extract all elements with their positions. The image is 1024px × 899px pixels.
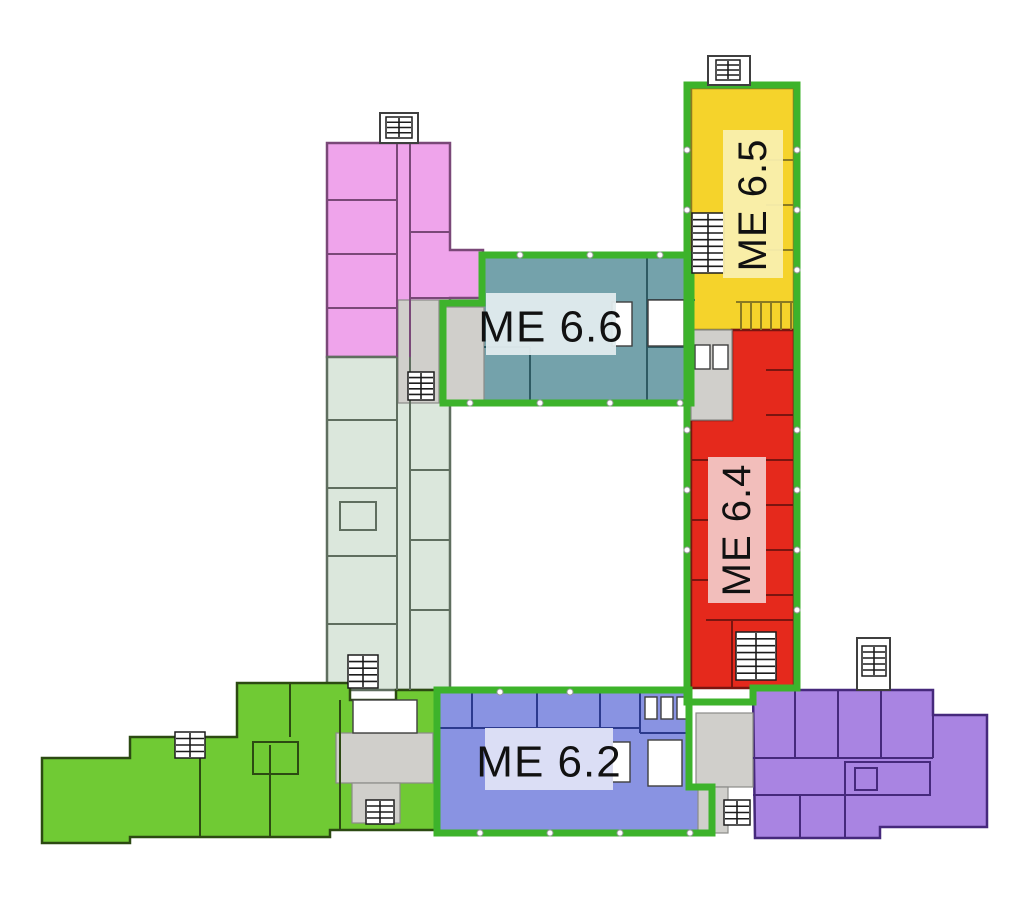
- floor-plan-page: ME 6.6ME 6.5ME 6.4ME 6.2: [0, 0, 1024, 899]
- column-dot: [794, 487, 800, 493]
- column-dot: [497, 689, 503, 695]
- lift-fixture: [353, 700, 417, 733]
- lobby-area: [696, 713, 753, 787]
- zone-label-me66: ME 6.6: [478, 303, 623, 352]
- column-dot: [684, 147, 690, 153]
- column-dot: [467, 400, 473, 406]
- lobby-area: [336, 733, 433, 783]
- zone-label-me64: ME 6.4: [715, 464, 759, 597]
- column-dot: [517, 252, 523, 258]
- column-dot: [684, 427, 690, 433]
- lift-fixture: [661, 697, 673, 719]
- column-dot: [794, 607, 800, 613]
- zone-label-me65: ME 6.5: [731, 139, 775, 272]
- column-dot: [607, 400, 613, 406]
- column-dot: [684, 207, 690, 213]
- column-dot: [794, 147, 800, 153]
- column-dot: [477, 830, 483, 836]
- column-dot: [794, 547, 800, 553]
- column-dot: [794, 427, 800, 433]
- lift-fixture: [713, 345, 728, 369]
- column-dot: [537, 400, 543, 406]
- column-dot: [684, 547, 690, 553]
- column-dot: [677, 400, 683, 406]
- column-dot: [567, 689, 573, 695]
- lift-fixture: [648, 740, 682, 786]
- lift-fixture: [695, 345, 710, 369]
- floor-plan-svg: ME 6.6ME 6.5ME 6.4ME 6.2: [0, 0, 1024, 899]
- lift-fixture: [648, 300, 684, 346]
- column-dot: [684, 487, 690, 493]
- lobby-area: [691, 330, 732, 420]
- column-dot: [687, 830, 693, 836]
- lift-fixture: [645, 697, 657, 719]
- zone-label-me62: ME 6.2: [476, 738, 621, 787]
- zone-west-wing-lower: [327, 357, 450, 690]
- column-dot: [587, 252, 593, 258]
- column-dot: [547, 830, 553, 836]
- column-dot: [794, 207, 800, 213]
- column-dot: [794, 267, 800, 273]
- column-dot: [617, 830, 623, 836]
- column-dot: [657, 252, 663, 258]
